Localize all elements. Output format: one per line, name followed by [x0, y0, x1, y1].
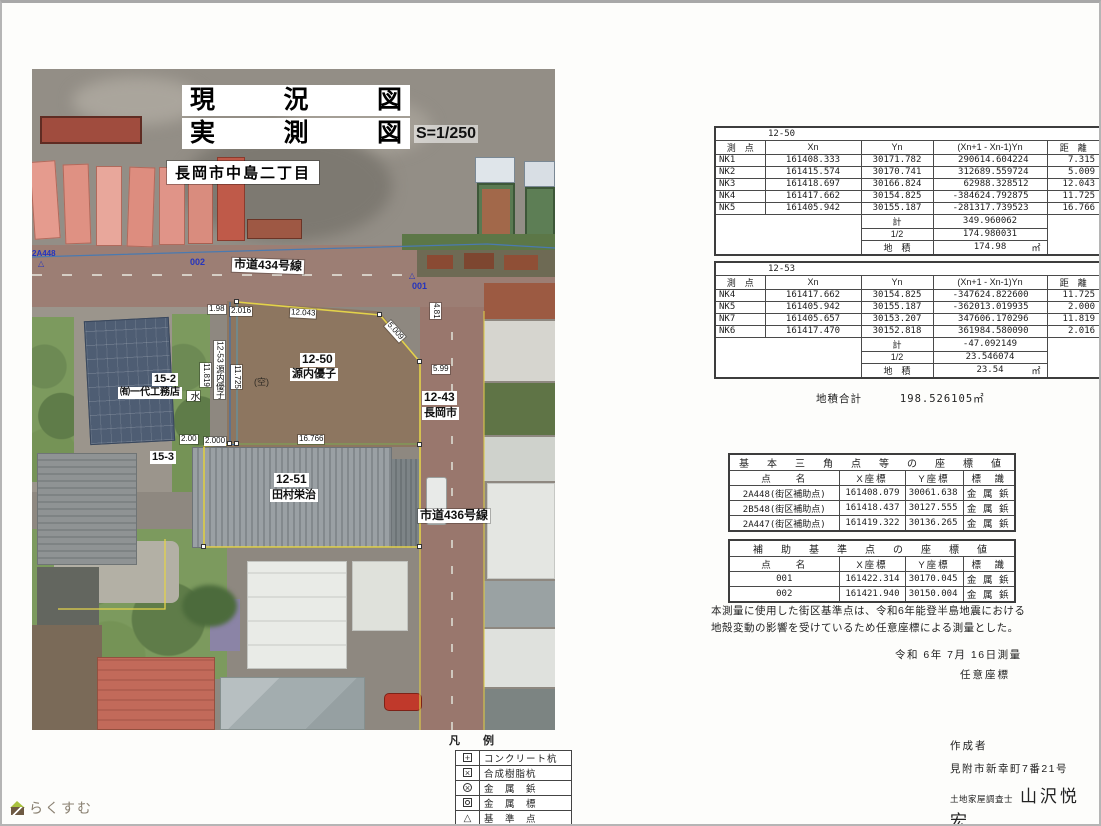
survey-note: 本測量に使用した街区基準点は、令和6年能登半島地震における 地殻変動の影響を受け… [711, 603, 1056, 638]
house-icon [10, 801, 25, 815]
table-cell: NK7 [715, 313, 765, 325]
warehouse-roof-left [37, 453, 137, 565]
vertex-marker [417, 359, 422, 364]
table-cell: 30171.782 [861, 154, 933, 166]
building-annex-roof [392, 459, 420, 548]
area-total-value: 198.526105㎡ [900, 393, 985, 405]
measurement-right: 5.99 [432, 365, 450, 374]
concrete-pile-icon: + [463, 753, 472, 762]
table-body: 001161422.31430170.045金 属 鋲002161421.940… [729, 572, 1015, 603]
col-header: Y座標 [905, 471, 963, 486]
area-unit: ㎡ [1031, 241, 1040, 254]
author-role: 土地家屋調査士 [950, 794, 1013, 804]
map-title-line1: 現況図 [182, 85, 410, 116]
parcel-12-50-number: 12-50 [300, 353, 335, 367]
table-cell: 2.016 [1047, 325, 1100, 337]
parcel-12-51-number: 12-51 [274, 473, 309, 487]
table-cell: NK4 [715, 190, 765, 202]
table-cell: 161408.079 [839, 486, 905, 501]
table-cell: 161421.940 [839, 587, 905, 603]
east-trees [484, 383, 555, 435]
footer-value: 23.546074 [933, 351, 1047, 363]
table-cell: 30127.555 [905, 501, 963, 516]
table-cell: NK4 [715, 289, 765, 301]
point-002-label: 002 [190, 257, 205, 267]
measurement-t2: 2.016 [230, 307, 252, 316]
col-header: X座標 [839, 557, 905, 572]
junk [464, 253, 494, 269]
table-body: NK4161417.66230154.825-347624.82260011.7… [715, 289, 1100, 337]
col-header: Y座標 [905, 557, 963, 572]
col-header: 点 名 [729, 557, 839, 572]
parcel-12-43-owner: 長岡市 [422, 407, 459, 420]
veg-strip [402, 234, 555, 250]
table-cell: 161408.333 [765, 154, 861, 166]
junk [504, 255, 538, 270]
table-cell: 11.819 [1047, 313, 1100, 325]
table-cell: 161417.470 [765, 325, 861, 337]
footer-value: 174.98 ㎡ [933, 240, 1047, 255]
footer-label: 地 積 [861, 363, 933, 378]
container [96, 166, 122, 246]
road-434-label: 市道434号線 [232, 258, 304, 274]
legend: 凡 例 + コンクリート杭 × 合成樹脂杭 × 金 属 鋲 金 属 標 △ 基 … [449, 732, 572, 826]
east-dark [484, 689, 555, 730]
measurement-left-b: 11.725 [231, 365, 242, 389]
vertex-marker [201, 544, 206, 549]
table-row: NK5161405.94230155.187-362013.0199352.00… [715, 301, 1100, 313]
area-total: 地積合計 198.526105㎡ [816, 391, 985, 406]
area-unit: ㎡ [1031, 364, 1040, 377]
table-row: NK4161417.66230154.825-384624.79287511.7… [715, 190, 1100, 202]
table-cell: 161419.322 [839, 516, 905, 532]
table-cell: 62988.328512 [933, 178, 1047, 190]
point-001-label: 001 [412, 281, 427, 291]
area-calc-table-12-53: 12-53 測 点 Xn Yn (Xn+1 - Xn-1)Yn 距 離 NK41… [714, 261, 1101, 379]
footer-value: -47.092149 [933, 337, 1047, 351]
junk [427, 255, 453, 269]
survey-date: 令和 6年 7月 16日測量 [895, 647, 1022, 662]
author-address: 見附市新幸町7番21号 [950, 761, 1099, 776]
asphalt-bottom-left [32, 625, 102, 730]
note-line1: 本測量に使用した街区基準点は、令和6年能登半島地震における [711, 603, 1056, 620]
table-cell: 30153.207 [861, 313, 933, 325]
east-rust [484, 283, 555, 319]
parcel-15-2-owner: ㈲一代工務店 [118, 387, 182, 399]
container [127, 167, 156, 248]
table-cell: 16.766 [1047, 202, 1100, 214]
table-cell: -362013.019935 [933, 301, 1047, 313]
table-cell: 347606.170296 [933, 313, 1047, 325]
truck-cab [475, 157, 515, 183]
measurement-road-width: 4.81 [430, 303, 441, 319]
footer-label: 計 [861, 214, 933, 228]
table-cell: 30170.045 [905, 572, 963, 587]
author-block: 作成者 見附市新幸町7番21号 土地家屋調査士 山沢悦宏 [950, 738, 1099, 826]
table-title: 補 助 基 準 点 の 座 標 値 [729, 540, 1015, 557]
author-name-row: 土地家屋調査士 山沢悦宏 [950, 782, 1099, 826]
measurement-b1: 2.00 [180, 435, 198, 444]
table-cell: 30170.741 [861, 166, 933, 178]
table-cell: 161422.314 [839, 572, 905, 587]
triangulation-point-table: 基 本 三 角 点 等 の 座 標 値 点 名 X座標 Y座標 標 識 2A44… [728, 453, 1016, 532]
table-cell: -347624.822600 [933, 289, 1047, 301]
table-cell: 金 属 鋲 [963, 486, 1015, 501]
table-cell: 30166.824 [861, 178, 933, 190]
container [63, 164, 92, 245]
col-header: 点 名 [729, 471, 839, 486]
footer-label: 計 [861, 337, 933, 351]
table-row: NK4161417.66230154.825-347624.82260011.7… [715, 289, 1100, 301]
table-cell: 金 属 鋲 [963, 516, 1015, 532]
table-cell: NK5 [715, 202, 765, 214]
col-header: 距 離 [1047, 140, 1100, 154]
coordinate-system-label: 任意座標 [960, 667, 1010, 682]
col-header: 標 識 [963, 471, 1015, 486]
road-436-dashes [451, 319, 453, 730]
footer-label: 地 積 [861, 240, 933, 255]
parcel-15-2-number: 15-2 [152, 373, 178, 386]
table-cell: NK3 [715, 178, 765, 190]
resin-pile-icon: × [463, 768, 472, 777]
table-row: NK3161418.69730166.82462988.32851212.043 [715, 178, 1100, 190]
table-row: NK5161405.94230155.187-281317.73952316.7… [715, 202, 1100, 214]
white-building-roof [247, 561, 347, 669]
measurement-left-a: 11.819 [200, 363, 211, 387]
water-label: 水 [187, 391, 200, 401]
table-cell: NK2 [715, 166, 765, 178]
table-row: NK7161405.65730153.207347606.17029611.81… [715, 313, 1100, 325]
triangle-point-icon: △ [409, 271, 415, 280]
table-cell: 金 属 鋲 [963, 587, 1015, 603]
vertex-marker [417, 442, 422, 447]
area-value: 174.98 [974, 242, 1007, 252]
legend-row: × 合成樹脂杭 [456, 766, 572, 781]
scanned-survey-document: 現況図 実測図 S=1/250 長岡市中島二丁目 市道434号線 市道436号線… [0, 0, 1101, 826]
aerial-photo: 現況図 実測図 S=1/250 長岡市中島二丁目 市道434号線 市道436号線… [32, 69, 555, 730]
table-cell: 312689.559724 [933, 166, 1047, 178]
area-total-label: 地積合計 [816, 393, 862, 405]
east-white-building [487, 483, 555, 579]
tree-clump [182, 585, 237, 627]
point-2a448-label: 2A448 [32, 249, 56, 258]
vertex-marker [227, 441, 232, 446]
col-header: 距 離 [1047, 275, 1100, 289]
col-header: Xn [765, 275, 861, 289]
map-title-line2: 実測図 [182, 118, 410, 149]
col-header: 測 点 [715, 275, 765, 289]
legend-row: + コンクリート杭 [456, 751, 572, 766]
table-header-row: 点 名 X座標 Y座標 標 識 [729, 471, 1015, 486]
table-header-row: 測 点 Xn Yn (Xn+1 - Xn-1)Yn 距 離 [715, 140, 1100, 154]
road-436-label: 市道436号線 [418, 509, 490, 523]
col-header: 標 識 [963, 557, 1015, 572]
vacant-label: (空) [254, 375, 269, 388]
triangle-point-icon: △ [38, 259, 44, 268]
vertex-marker [234, 441, 239, 446]
legend-label: 基 準 点 [480, 811, 572, 826]
metal-marker-icon [463, 798, 472, 807]
table-row: NK2161415.57430170.741312689.5597245.009 [715, 166, 1100, 178]
measurement-top: 12.043 [290, 308, 317, 318]
table-row: NK6161417.47030152.818361984.5800902.016 [715, 325, 1100, 337]
table-cell: NK5 [715, 301, 765, 313]
location-label: 長岡市中島二丁目 [167, 161, 319, 184]
red-roof-building [97, 657, 215, 730]
table-header-row: 測 点 Xn Yn (Xn+1 - Xn-1)Yn 距 離 [715, 275, 1100, 289]
east-white-roof [484, 629, 555, 687]
table-cell: 30150.004 [905, 587, 963, 603]
table-row: NK1161408.33330171.782290614.6042247.315 [715, 154, 1100, 166]
footer-row: 計 -47.092149 [715, 337, 1100, 351]
table-cell: 12.043 [1047, 178, 1100, 190]
footer-value: 174.980031 [933, 228, 1047, 240]
table-cell: 30154.825 [861, 289, 933, 301]
legend-title: 凡 例 [449, 732, 572, 748]
table-header-row: 点 名 X座標 Y座標 標 識 [729, 557, 1015, 572]
table-cell: 金 属 鋲 [963, 501, 1015, 516]
table-cell: 290614.604224 [933, 154, 1047, 166]
footer-label: 1/2 [861, 228, 933, 240]
dark-roof-left [37, 567, 99, 625]
col-header: X座標 [839, 471, 905, 486]
note-line2: 地殻変動の影響を受けているため任意座標による測量とした。 [711, 620, 1056, 637]
area-value: 23.54 [976, 365, 1003, 375]
vertex-marker [234, 299, 239, 304]
logo-text: らくすむ [29, 798, 93, 818]
table-cell: 161415.574 [765, 166, 861, 178]
table-cell: 7.315 [1047, 154, 1100, 166]
legend-label: コンクリート杭 [480, 751, 572, 766]
container-rusty [247, 219, 302, 239]
table-row: 2A447(街区補助点)161419.32230136.265金 属 鋲 [729, 516, 1015, 532]
table-cell: 30155.187 [861, 301, 933, 313]
container-long [40, 116, 142, 144]
gray-hip-roof-building [220, 677, 365, 730]
red-car [384, 693, 422, 711]
table-cell: 11.725 [1047, 190, 1100, 202]
east-building [484, 437, 555, 481]
footer-value: 23.54 ㎡ [933, 363, 1047, 378]
table-row: 001161422.31430170.045金 属 鋲 [729, 572, 1015, 587]
table-cell: 161418.697 [765, 178, 861, 190]
parcel-12-51-owner: 田村栄治 [270, 489, 318, 502]
metal-rivet-icon: × [463, 783, 472, 792]
table-cell: 161418.437 [839, 501, 905, 516]
parcel-12-50-owner: 源内優子 [290, 368, 338, 381]
area-calc-table-12-50: 12-50 測 点 Xn Yn (Xn+1 - Xn-1)Yn 距 離 NK11… [714, 126, 1101, 256]
legend-row: × 金 属 鋲 [456, 781, 572, 796]
site-logo: らくすむ [10, 798, 93, 818]
parcel-12-43-number: 12-43 [422, 391, 457, 405]
table-cell: 161405.942 [765, 301, 861, 313]
legend-label: 金 属 鋲 [480, 781, 572, 796]
table-cell: 161417.662 [765, 289, 861, 301]
footer-row: 計 349.960062 [715, 214, 1100, 228]
table-body: 2A448(街区補助点)161408.07930061.638金 属 鋲2B54… [729, 486, 1015, 532]
measurement-t1: 1.98 [208, 305, 226, 314]
measurement-bottom: 16.766 [298, 435, 324, 444]
table-cell: 30061.638 [905, 486, 963, 501]
auxiliary-point-table: 補 助 基 準 点 の 座 標 値 点 名 X座標 Y座標 標 識 001161… [728, 539, 1016, 603]
vertex-marker [377, 312, 382, 317]
legend-label: 金 属 標 [480, 796, 572, 811]
table-cell: -384624.792875 [933, 190, 1047, 202]
parcel-15-3-number: 15-3 [150, 451, 176, 464]
table-cell: 361984.580090 [933, 325, 1047, 337]
table-cell: 5.009 [1047, 166, 1100, 178]
table-cell: 2.000 [1047, 301, 1100, 313]
col-header: (Xn+1 - Xn-1)Yn [933, 140, 1047, 154]
table-cell: 2A448(街区補助点) [729, 486, 839, 501]
control-point-icon: △ [464, 813, 472, 824]
table-row: 002161421.94030150.004金 属 鋲 [729, 587, 1015, 603]
author-heading: 作成者 [950, 738, 1099, 753]
table-row: 2B548(街区補助点)161418.43730127.555金 属 鋲 [729, 501, 1015, 516]
legend-table: + コンクリート杭 × 合成樹脂杭 × 金 属 鋲 金 属 標 △ 基 準 点 [455, 750, 572, 826]
footer-value: 349.960062 [933, 214, 1047, 228]
east-building [484, 321, 555, 381]
footer-label: 1/2 [861, 351, 933, 363]
table-cell: 2B548(街区補助点) [729, 501, 839, 516]
vertex-marker [417, 544, 422, 549]
table-cell: NK6 [715, 325, 765, 337]
table-title: 基 本 三 角 点 等 の 座 標 値 [729, 454, 1015, 471]
table-cell: 161417.662 [765, 190, 861, 202]
col-header: Yn [861, 275, 933, 289]
table-cell: NK1 [715, 154, 765, 166]
col-header: 測 点 [715, 140, 765, 154]
measurement-b2: 2.000 [204, 437, 226, 446]
table-body: NK1161408.33330171.782290614.6042247.315… [715, 154, 1100, 214]
table-cell: 30155.187 [861, 202, 933, 214]
legend-label: 合成樹脂杭 [480, 766, 572, 781]
table-cell: 30152.818 [861, 325, 933, 337]
east-gray-roof [484, 581, 555, 627]
table-cell: -281317.739523 [933, 202, 1047, 214]
col-header: Yn [861, 140, 933, 154]
table-cell: 30136.265 [905, 516, 963, 532]
table-cell: 161405.942 [765, 202, 861, 214]
truck-cab [524, 161, 555, 187]
table-cell: 002 [729, 587, 839, 603]
table-cell: 001 [729, 572, 839, 587]
table-cell: 161405.657 [765, 313, 861, 325]
white-building-small [352, 561, 408, 631]
table-cell: 30154.825 [861, 190, 933, 202]
legend-row: △ 基 準 点 [456, 811, 572, 826]
table-cell: 11.725 [1047, 289, 1100, 301]
author-name: 山沢悦宏 [950, 787, 1080, 826]
col-header: (Xn+1 - Xn-1)Yn [933, 275, 1047, 289]
table-cell: 2A447(街区補助点) [729, 516, 839, 532]
table-row: 2A448(街区補助点)161408.07930061.638金 属 鋲 [729, 486, 1015, 501]
table-cell: 金 属 鋲 [963, 572, 1015, 587]
legend-row: 金 属 標 [456, 796, 572, 811]
table-parcel-id: 12-53 [715, 262, 1100, 275]
col-header: Xn [765, 140, 861, 154]
scale-label: S=1/250 [414, 125, 478, 143]
table-parcel-id: 12-50 [715, 127, 1100, 140]
parcel-12-53-label: 12-53 源内優子 [214, 341, 225, 399]
